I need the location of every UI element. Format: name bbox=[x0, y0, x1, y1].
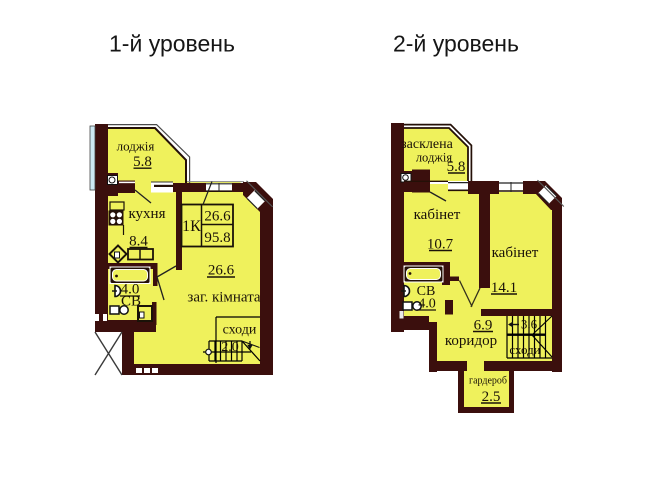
svg-text:кабінет: кабінет bbox=[492, 245, 539, 261]
svg-text:сходи: сходи bbox=[509, 342, 540, 357]
svg-text:кухня: кухня bbox=[128, 206, 165, 222]
svg-text:сходи: сходи bbox=[223, 323, 257, 338]
svg-text:2-й уровень: 2-й уровень bbox=[393, 31, 519, 57]
svg-text:кабінет: кабінет bbox=[414, 207, 461, 223]
svg-text:3.6: 3.6 bbox=[521, 317, 538, 332]
svg-text:95.8: 95.8 bbox=[204, 230, 230, 246]
svg-text:лоджія: лоджія bbox=[117, 139, 155, 154]
svg-text:1-й уровень: 1-й уровень bbox=[109, 31, 235, 57]
svg-text:заг. кімната: заг. кімната bbox=[187, 290, 261, 306]
svg-text:1К: 1К bbox=[182, 218, 201, 235]
svg-text:коридор: коридор bbox=[445, 333, 497, 349]
svg-text:26.6: 26.6 bbox=[208, 263, 235, 279]
svg-text:4.0: 4.0 bbox=[418, 297, 436, 312]
svg-text:26.6: 26.6 bbox=[204, 209, 231, 225]
svg-text:гардероб: гардероб bbox=[469, 376, 507, 387]
svg-text:2.0: 2.0 bbox=[221, 340, 239, 355]
svg-text:СВ: СВ bbox=[121, 294, 141, 310]
